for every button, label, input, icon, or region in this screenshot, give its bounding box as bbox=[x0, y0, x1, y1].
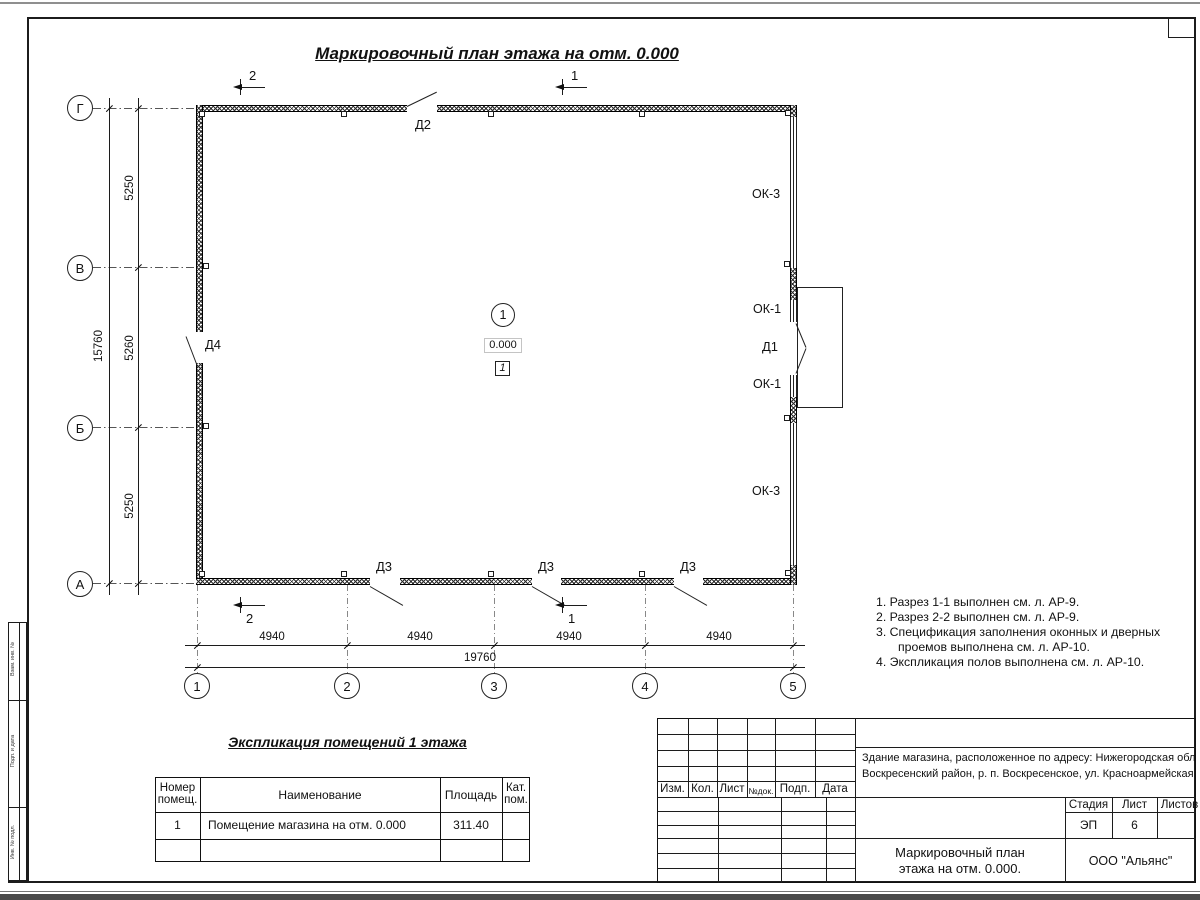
section-arrow-icon bbox=[555, 602, 564, 608]
titleblock-line bbox=[657, 750, 855, 751]
titleblock-line bbox=[657, 734, 855, 735]
axis-bubble-col: 3 bbox=[481, 673, 507, 699]
column-mark bbox=[488, 111, 494, 117]
section-mark-2-top-line bbox=[240, 87, 265, 88]
page-edge-top bbox=[0, 2, 1200, 4]
room-table-title: Экспликация помещений 1 этажа bbox=[195, 734, 500, 750]
column-mark bbox=[203, 263, 209, 269]
column-mark bbox=[488, 571, 494, 577]
doc-title-line2: этажа на отм. 0.000. bbox=[860, 861, 1060, 876]
sheet-value: 6 bbox=[1112, 818, 1157, 832]
window-label-ok1: ОК-1 bbox=[753, 377, 781, 391]
titleblock-rev-header: Кол. bbox=[688, 783, 717, 795]
column-mark bbox=[341, 571, 347, 577]
dim-value-v: 5250 bbox=[124, 158, 136, 218]
window-label-ok1: ОК-1 bbox=[753, 302, 781, 316]
window-ok3-upper bbox=[790, 117, 797, 268]
sheets-label: Листов bbox=[1157, 799, 1200, 811]
door-leaf-d3 bbox=[674, 586, 707, 606]
table-cell-number: 1 bbox=[155, 818, 200, 832]
section-mark-2-bottom-line bbox=[240, 605, 265, 606]
note-line: 4. Экспликация полов выполнена см. л. АР… bbox=[876, 655, 1144, 669]
section-mark-1-top-line bbox=[562, 87, 587, 88]
wall-bottom-4 bbox=[703, 578, 797, 585]
project-description-line2: Воскресенский район, р. п. Воскресенское… bbox=[862, 768, 1196, 780]
table-cell-area: 311.40 bbox=[440, 818, 502, 832]
titleblock-line bbox=[781, 797, 782, 883]
side-stamp-label: Взам. инв. № bbox=[10, 624, 16, 694]
axis-line-2 bbox=[347, 585, 348, 673]
doc-title-line1: Маркировочный план bbox=[860, 845, 1060, 860]
table-header-cat: пом. bbox=[502, 794, 530, 806]
dim-value-h-total: 19760 bbox=[450, 652, 510, 664]
note-line: 1. Разрез 1-1 выполнен см. л. АР-9. bbox=[876, 595, 1079, 609]
frame-left bbox=[27, 17, 29, 883]
project-description-line1: Здание магазина, расположенное по адресу… bbox=[862, 752, 1196, 764]
dim-value-h: 4940 bbox=[242, 631, 302, 643]
section-label-1: 1 bbox=[571, 68, 578, 83]
section-label-1: 1 bbox=[568, 611, 575, 626]
door-leaf-d3 bbox=[370, 586, 403, 606]
section-label-2: 2 bbox=[249, 68, 256, 83]
axis-bubble-row: А bbox=[67, 571, 93, 597]
format-corner-box bbox=[1168, 17, 1195, 38]
dim-line-h-total bbox=[185, 667, 805, 668]
titleblock-rev-header: Лист bbox=[717, 783, 747, 795]
column-mark bbox=[199, 111, 205, 117]
dim-line-v-total bbox=[109, 98, 110, 595]
dim-value-h: 4940 bbox=[689, 631, 749, 643]
wall-right-pier bbox=[790, 105, 797, 117]
door-label-d1: Д1 bbox=[762, 339, 778, 354]
axis-line-5 bbox=[793, 585, 794, 673]
column-mark bbox=[784, 261, 790, 267]
axis-bubble-col: 4 bbox=[632, 673, 658, 699]
axis-bubble-row: В bbox=[67, 255, 93, 281]
column-mark bbox=[785, 110, 791, 116]
titleblock-rev-header: №док. bbox=[747, 786, 775, 796]
door-label-d3: Д3 bbox=[531, 559, 561, 574]
window-ok3-lower bbox=[790, 423, 797, 565]
note-line: 2. Разрез 2-2 выполнен см. л. АР-9. bbox=[876, 610, 1079, 624]
window-label-ok3: ОК-3 bbox=[752, 484, 780, 498]
door-label-d3: Д3 bbox=[369, 559, 399, 574]
window-ok1-upper bbox=[790, 300, 797, 322]
table-header-cat: Кат. bbox=[502, 782, 530, 794]
section-arrow-icon bbox=[555, 84, 564, 90]
column-mark bbox=[341, 111, 347, 117]
side-stamp-divider bbox=[8, 700, 27, 701]
titleblock-line bbox=[657, 766, 855, 767]
table-cell-name: Помещение магазина на отм. 0.000 bbox=[208, 818, 406, 832]
titleblock-line bbox=[855, 747, 1196, 748]
titleblock-line bbox=[718, 797, 719, 883]
wall-top-left bbox=[196, 105, 407, 112]
column-mark bbox=[639, 111, 645, 117]
axis-bubble-row: Г bbox=[67, 95, 93, 121]
dim-line-v-chain bbox=[138, 98, 139, 595]
porch-outline bbox=[797, 287, 843, 408]
table-header-name: Наименование bbox=[200, 788, 440, 802]
dim-value-v: 5250 bbox=[124, 476, 136, 536]
door-label-d4: Д4 bbox=[205, 337, 221, 352]
door-label-d3: Д3 bbox=[673, 559, 703, 574]
wall-right-pier bbox=[790, 565, 797, 585]
section-arrow-icon bbox=[233, 84, 242, 90]
titleblock-rev-header: Подп. bbox=[775, 783, 815, 795]
dim-value-v: 5260 bbox=[124, 318, 136, 378]
axis-bubble-row: Б bbox=[67, 415, 93, 441]
axis-line-4 bbox=[645, 585, 646, 673]
column-mark bbox=[203, 423, 209, 429]
frame-top bbox=[27, 17, 1196, 19]
side-stamp-label: Инв. № подл. bbox=[10, 807, 16, 877]
column-mark bbox=[639, 571, 645, 577]
dim-value-h: 4940 bbox=[390, 631, 450, 643]
axis-line-1 bbox=[197, 585, 198, 673]
dim-value-v-total: 15760 bbox=[93, 316, 105, 376]
titleblock-line bbox=[826, 797, 827, 883]
floor-type-mark: 1 bbox=[495, 361, 510, 376]
wall-left-upper bbox=[196, 105, 203, 332]
door-label-d2: Д2 bbox=[408, 117, 438, 132]
wall-bottom-1 bbox=[196, 578, 370, 585]
column-mark bbox=[784, 415, 790, 421]
table-grid-line bbox=[155, 839, 530, 840]
titleblock-rev-header: Изм. bbox=[657, 783, 688, 795]
table-header-number: Номер bbox=[155, 782, 200, 794]
titleblock-line bbox=[1065, 812, 1196, 813]
stage-label: Стадия bbox=[1065, 799, 1112, 811]
wall-bottom-3 bbox=[561, 578, 674, 585]
door-leaf-d2 bbox=[407, 92, 437, 107]
sheet-label: Лист bbox=[1112, 799, 1157, 811]
section-arrow-icon bbox=[233, 602, 242, 608]
section-label-2: 2 bbox=[246, 611, 253, 626]
table-header-number: помещ. bbox=[155, 794, 200, 806]
side-stamp-label: Подп. и дата bbox=[10, 716, 16, 786]
room-number-circle: 1 bbox=[491, 303, 515, 327]
dim-value-h: 4940 bbox=[539, 631, 599, 643]
section-mark-1-bottom-line bbox=[562, 605, 587, 606]
titleblock-line bbox=[657, 838, 1196, 839]
axis-bubble-col: 2 bbox=[334, 673, 360, 699]
wall-left-lower bbox=[196, 363, 203, 578]
axis-bubble-col: 5 bbox=[780, 673, 806, 699]
drawing-sheet: Взам. инв. № Подп. и дата Инв. № подл. М… bbox=[0, 0, 1200, 900]
window-label-ok3: ОК-3 bbox=[752, 187, 780, 201]
note-line: проемов выполнена см. л. АР-10. bbox=[898, 640, 1090, 654]
elevation-mark: 0.000 bbox=[484, 338, 522, 353]
wall-bottom-2 bbox=[400, 578, 532, 585]
side-stamp-divider bbox=[19, 622, 20, 881]
page-edge-bottom-line bbox=[0, 891, 1200, 892]
table-header-area: Площадь bbox=[440, 788, 502, 802]
company-name: ООО "Альянс" bbox=[1065, 854, 1196, 868]
wall-right-pier bbox=[790, 268, 797, 300]
column-mark bbox=[785, 570, 791, 576]
stage-value: ЭП bbox=[1065, 818, 1112, 832]
window-ok1-lower bbox=[790, 375, 797, 397]
axis-bubble-col: 1 bbox=[184, 673, 210, 699]
note-line: 3. Спецификация заполнения оконных и две… bbox=[876, 625, 1160, 639]
table-grid-line bbox=[155, 812, 530, 813]
page-edge-bottom-band bbox=[0, 894, 1200, 900]
wall-right-pier bbox=[790, 397, 797, 423]
titleblock-line bbox=[855, 718, 856, 883]
titleblock-rev-header: Дата bbox=[815, 783, 855, 795]
door-leaf-d4 bbox=[186, 336, 198, 366]
column-mark bbox=[199, 571, 205, 577]
plan-title: Маркировочный план этажа на отм. 0.000 bbox=[297, 44, 697, 64]
